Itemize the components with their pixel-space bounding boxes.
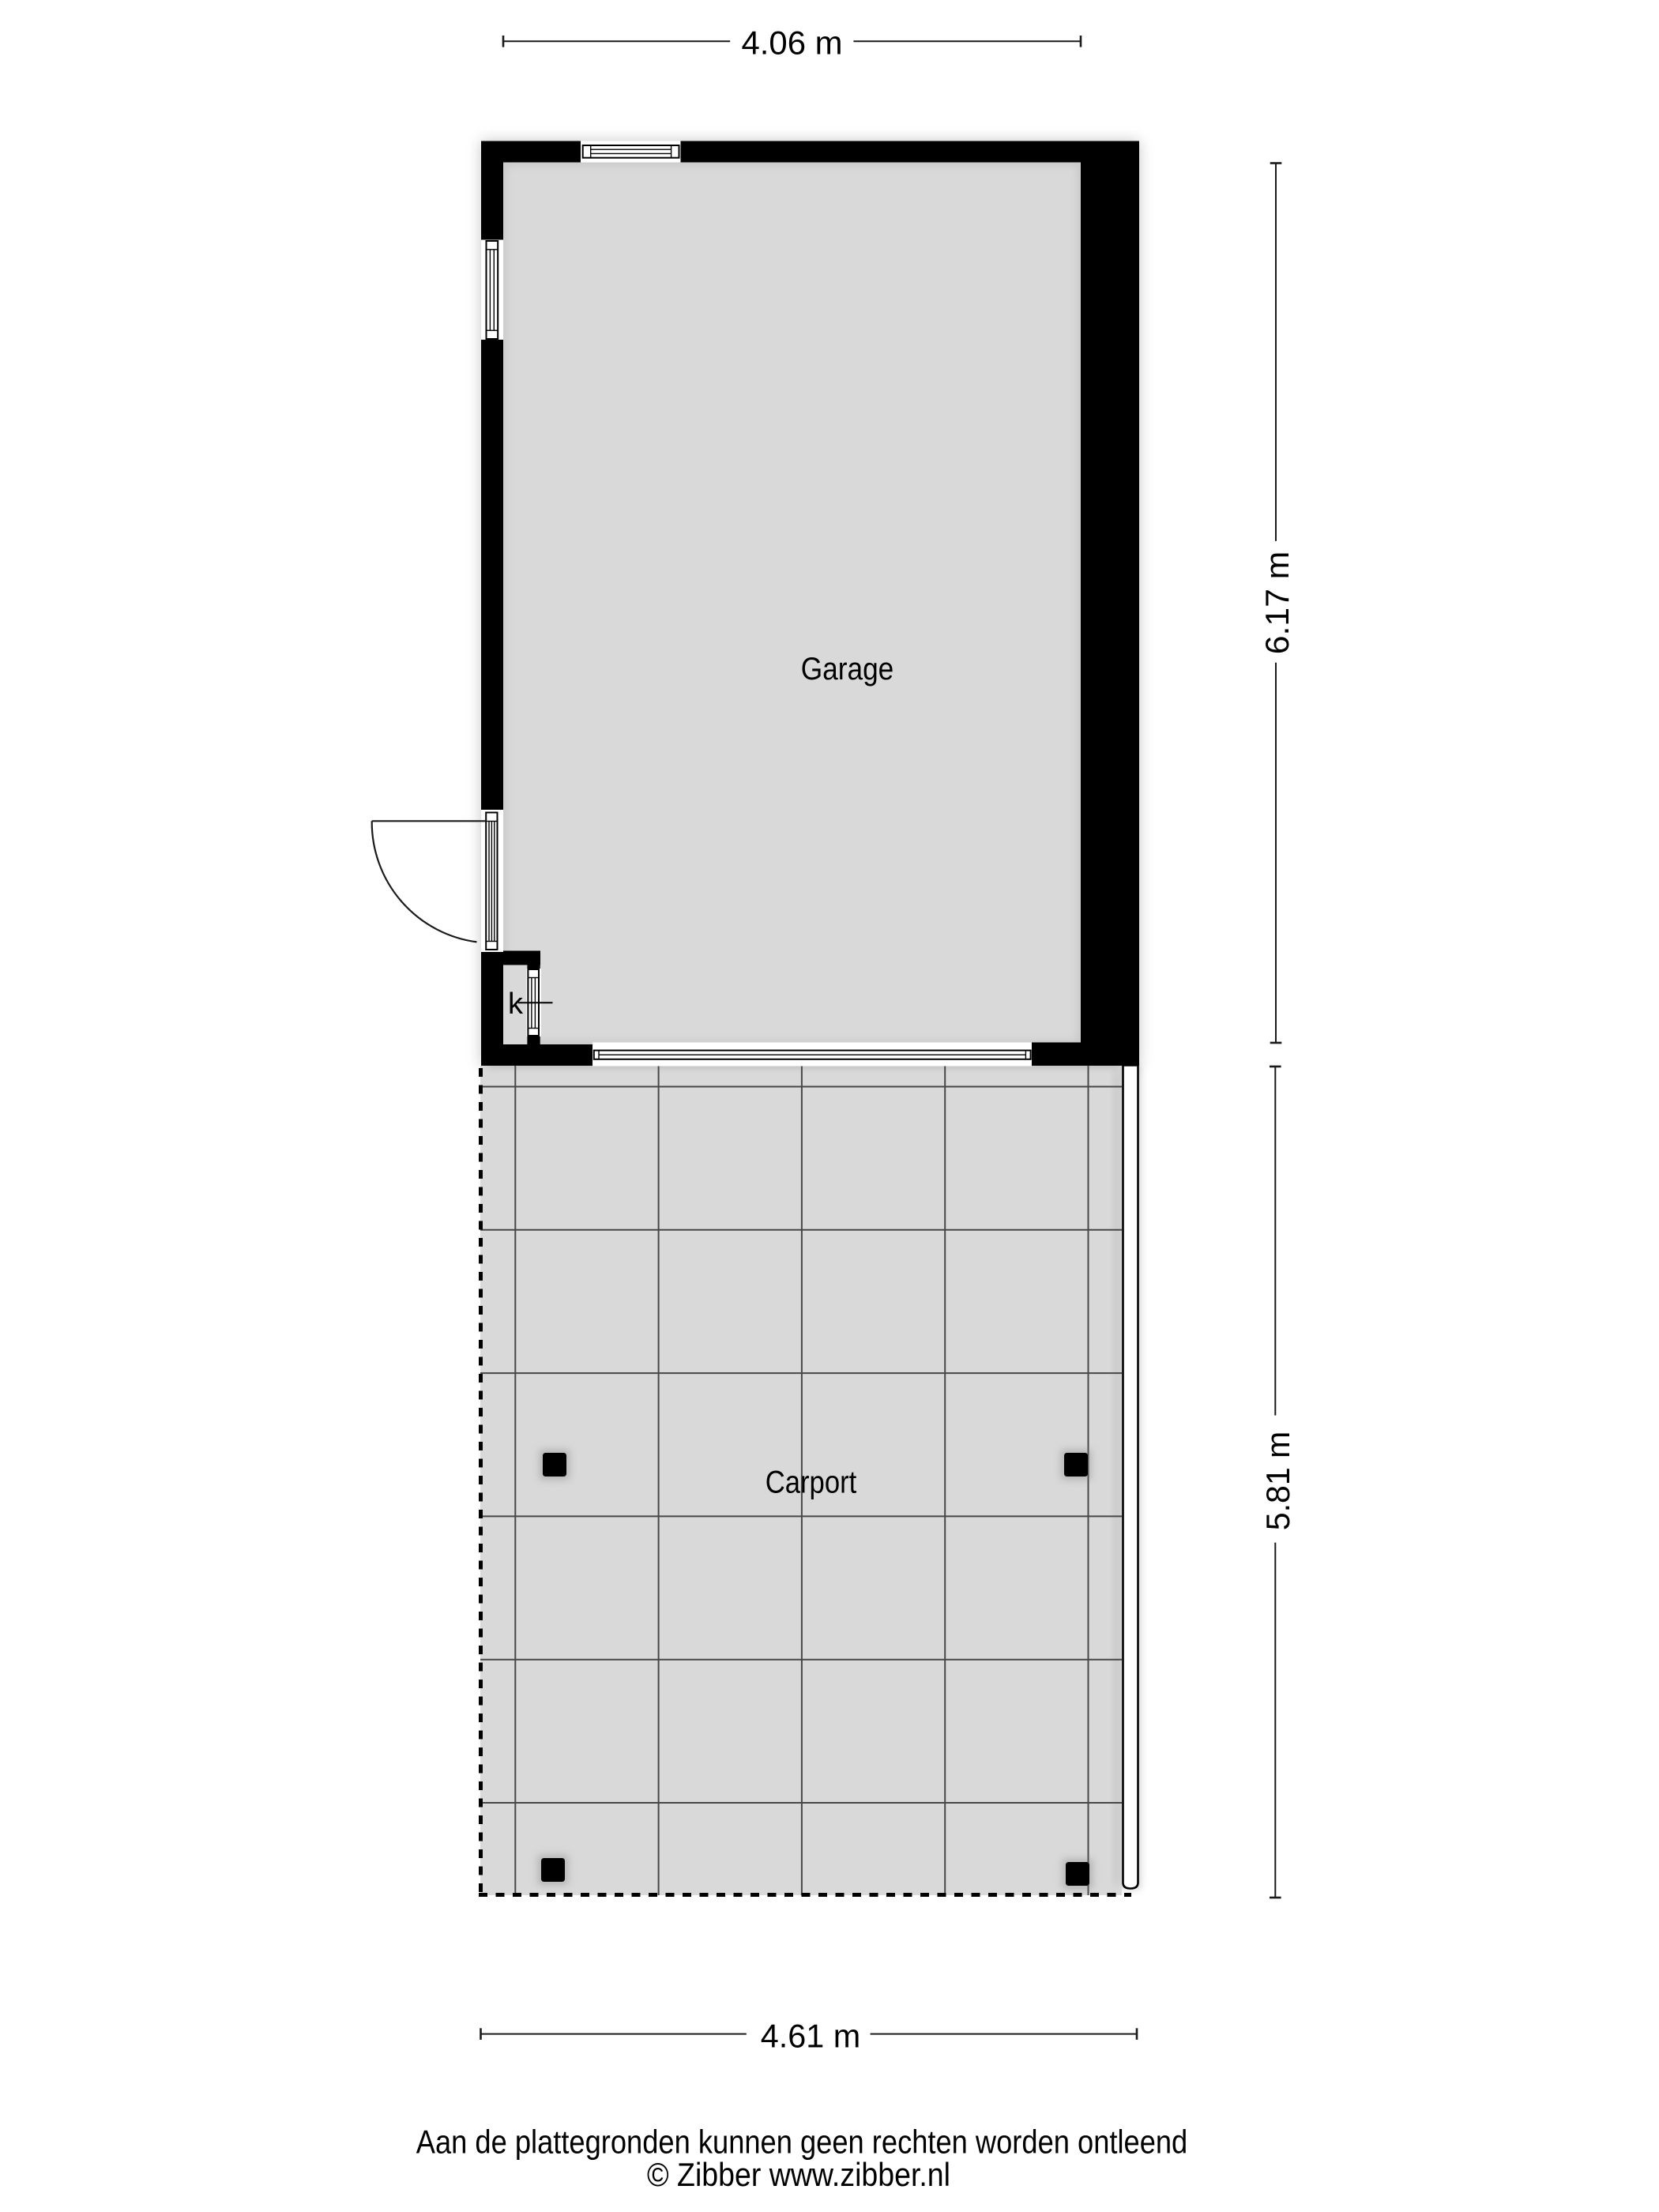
svg-text:5.81 m: 5.81 m	[1259, 1431, 1296, 1531]
svg-text:4.61 m: 4.61 m	[761, 2018, 861, 2055]
svg-text:6.17 m: 6.17 m	[1258, 551, 1296, 655]
svg-text:k: k	[508, 987, 524, 1021]
svg-text:Carport: Carport	[766, 1465, 857, 1499]
svg-text:© Zibber www.zibber.nl: © Zibber www.zibber.nl	[647, 2156, 950, 2193]
svg-text:Garage: Garage	[801, 652, 894, 687]
svg-text:Aan de plattegronden kunnen ge: Aan de plattegronden kunnen geen rechten…	[416, 2124, 1188, 2161]
svg-text:4.06 m: 4.06 m	[742, 24, 843, 62]
